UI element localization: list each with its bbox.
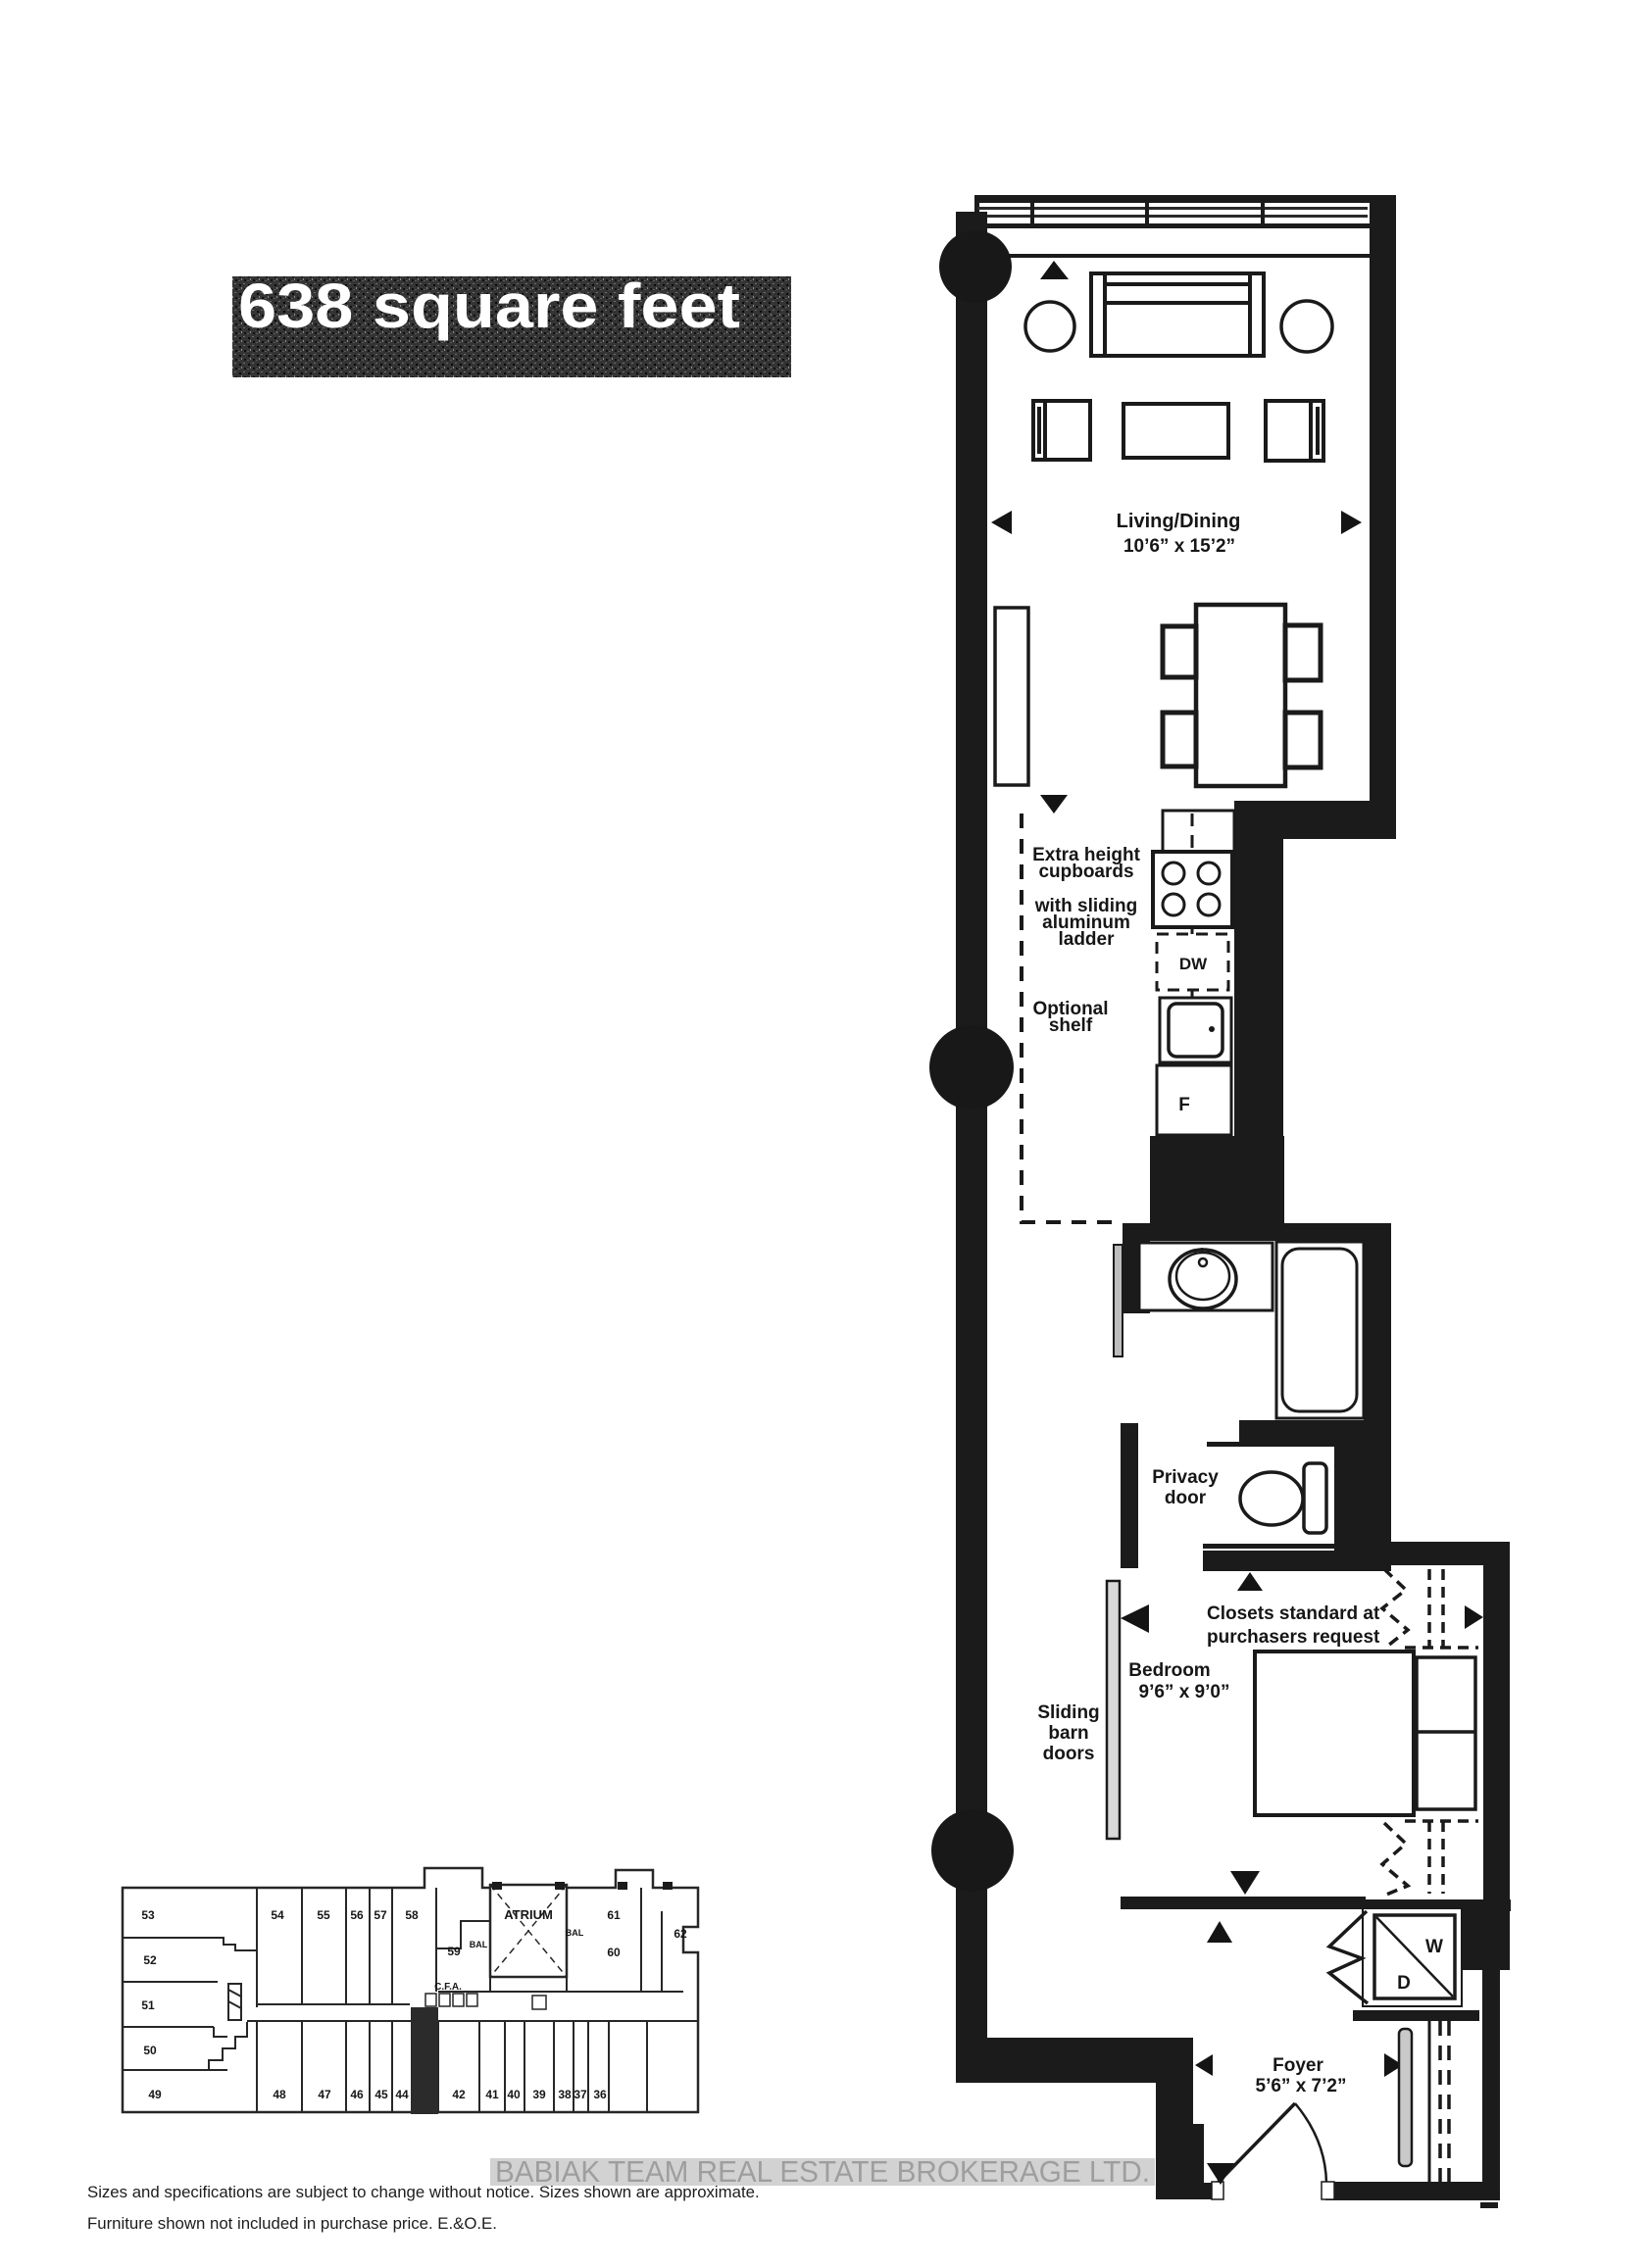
svg-text:Living/Dining: Living/Dining [1117, 511, 1241, 532]
svg-text:C.F.A.: C.F.A. [434, 1982, 462, 1993]
svg-text:52: 52 [143, 1953, 157, 1967]
svg-text:9’6” x 9’0”: 9’6” x 9’0” [1139, 1682, 1230, 1702]
svg-text:barn: barn [1048, 1723, 1088, 1744]
svg-text:41: 41 [485, 2088, 499, 2101]
svg-text:Bedroom: Bedroom [1128, 1660, 1210, 1681]
svg-text:48: 48 [273, 2088, 286, 2101]
svg-text:57: 57 [374, 1908, 387, 1922]
svg-text:doors: doors [1043, 1744, 1095, 1764]
svg-text:53: 53 [141, 1908, 155, 1922]
svg-text:54: 54 [271, 1908, 284, 1922]
svg-text:60: 60 [607, 1946, 621, 1959]
svg-text:37: 37 [574, 2088, 587, 2101]
svg-text:55: 55 [317, 1908, 330, 1922]
svg-text:10’6” x 15’2”: 10’6” x 15’2” [1123, 536, 1235, 557]
svg-text:47: 47 [318, 2088, 331, 2101]
svg-text:ATRIUM: ATRIUM [504, 1907, 553, 1922]
svg-text:38: 38 [558, 2088, 572, 2101]
svg-text:DW: DW [1179, 955, 1208, 973]
svg-text:Foyer: Foyer [1273, 2055, 1323, 2076]
svg-text:5’6” x 7’2”: 5’6” x 7’2” [1256, 2076, 1347, 2096]
svg-text:D: D [1397, 1973, 1411, 1994]
svg-text:purchasers request: purchasers request [1207, 1627, 1380, 1648]
svg-text:W: W [1425, 1937, 1443, 1957]
svg-text:56: 56 [350, 1908, 364, 1922]
svg-text:40: 40 [507, 2088, 521, 2101]
svg-text:Sliding: Sliding [1037, 1702, 1099, 1723]
svg-text:BAL: BAL [470, 1940, 488, 1949]
svg-text:59: 59 [447, 1945, 461, 1958]
svg-text:BAL: BAL [566, 1928, 584, 1938]
svg-text:46: 46 [350, 2088, 364, 2101]
svg-text:39: 39 [532, 2088, 546, 2101]
svg-text:58: 58 [405, 1908, 419, 1922]
svg-text:638 square feet: 638 square feet [238, 271, 740, 341]
svg-text:44: 44 [395, 2088, 409, 2101]
svg-text:49: 49 [148, 2088, 162, 2101]
svg-text:36: 36 [593, 2088, 607, 2101]
svg-text:61: 61 [607, 1908, 621, 1922]
svg-text:F: F [1178, 1095, 1190, 1115]
svg-text:Closets standard at: Closets standard at [1207, 1603, 1380, 1624]
svg-text:62: 62 [674, 1927, 687, 1941]
svg-text:cupboards: cupboards [1038, 862, 1133, 882]
svg-text:51: 51 [141, 1998, 155, 2012]
svg-text:45: 45 [374, 2088, 388, 2101]
svg-text:42: 42 [452, 2088, 466, 2101]
svg-text:Privacy: Privacy [1152, 1467, 1219, 1488]
svg-text:50: 50 [143, 2044, 157, 2057]
svg-text:Furniture shown not included i: Furniture shown not included in purchase… [87, 2214, 497, 2233]
svg-text:door: door [1165, 1488, 1207, 1508]
svg-text:ladder: ladder [1058, 929, 1115, 950]
svg-text:Sizes and specifications are s: Sizes and specifications are subject to … [87, 2183, 760, 2201]
svg-text:shelf: shelf [1049, 1015, 1093, 1036]
